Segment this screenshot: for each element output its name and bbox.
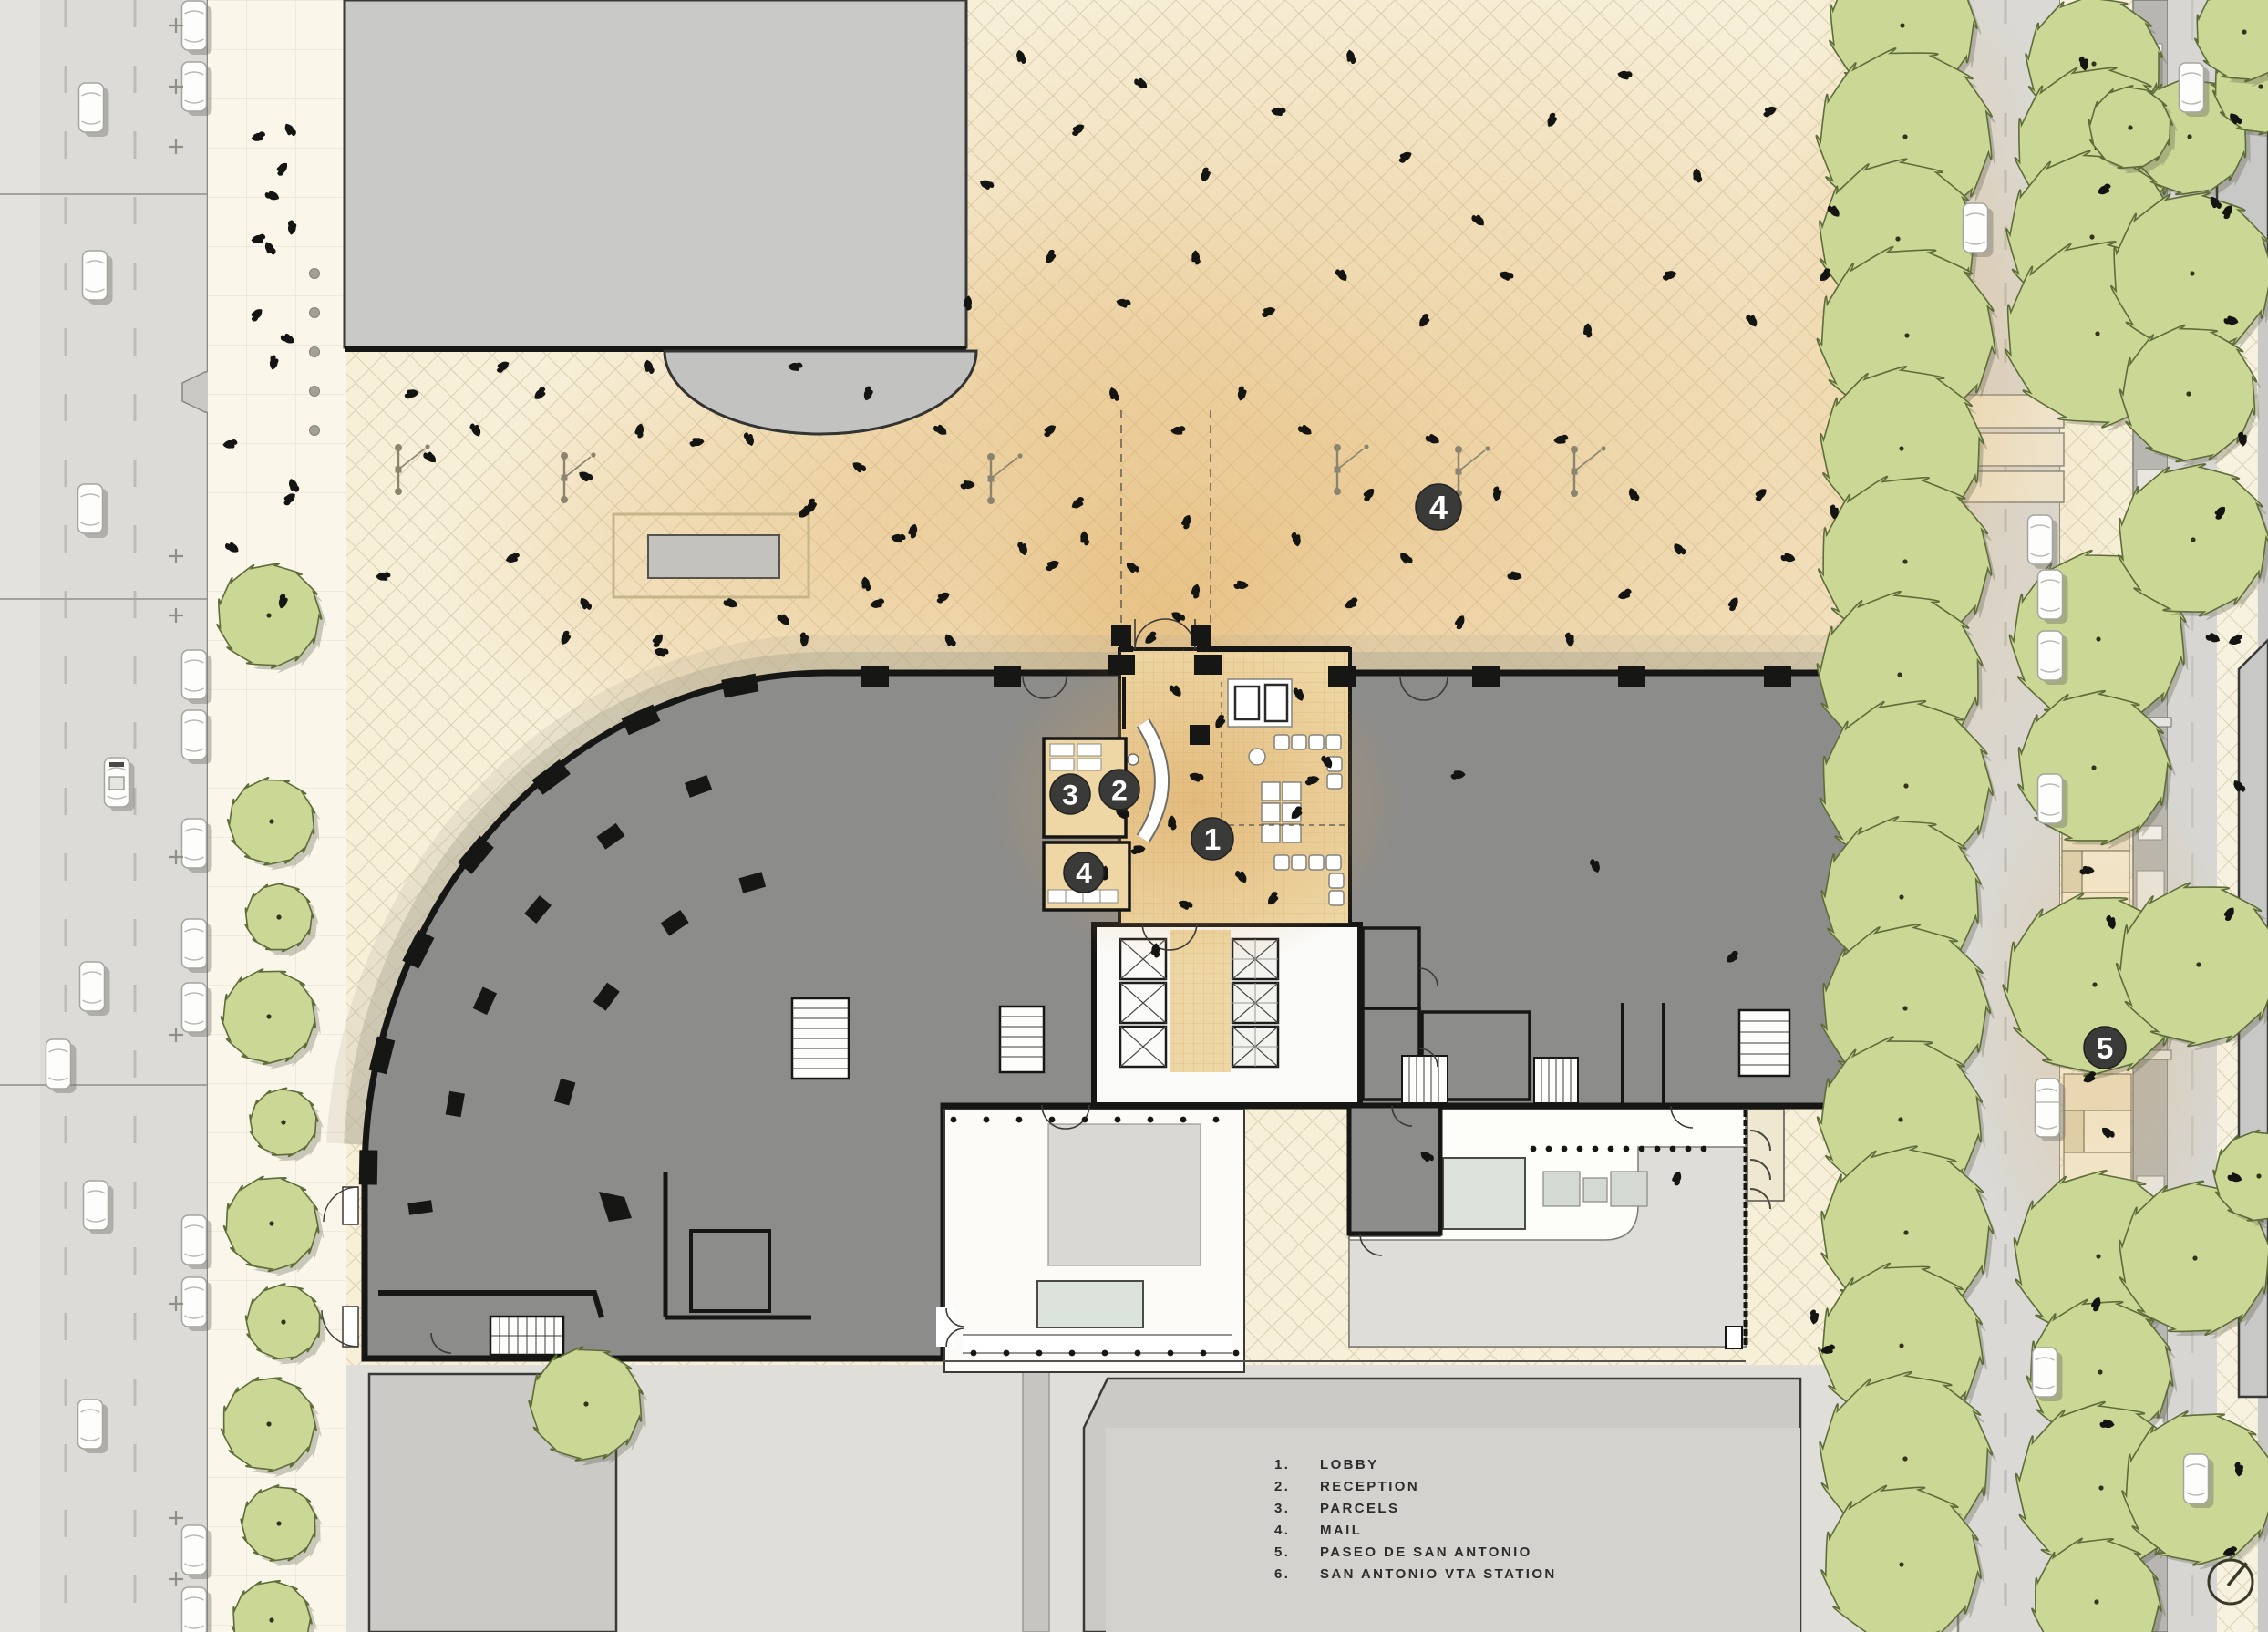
tree-trunk	[1902, 1006, 1907, 1010]
car	[2180, 63, 2210, 117]
car	[182, 1525, 212, 1579]
column	[1618, 666, 1645, 687]
tree-trunk	[1899, 1343, 1903, 1348]
tree-trunk	[1902, 559, 1907, 563]
stair-west-2	[1000, 1007, 1044, 1072]
car	[182, 62, 212, 116]
column	[1194, 655, 1222, 675]
legend-item: 1.LOBBY	[1274, 1457, 1379, 1472]
column-dot	[1546, 1146, 1552, 1152]
tree-trunk	[281, 1319, 285, 1324]
legend-label: LOBBY	[1320, 1457, 1379, 1472]
tree-trunk	[2095, 331, 2099, 336]
tree-trunk	[1902, 1456, 1907, 1461]
tree-trunk	[266, 1014, 271, 1018]
column-dot	[1670, 1146, 1676, 1152]
tree-trunk	[2256, 1173, 2261, 1178]
car	[80, 962, 110, 1016]
marker-4-plaza: 4	[1416, 484, 1461, 530]
legend-label: PARCELS	[1320, 1501, 1399, 1516]
marker-3-parcels: 3	[1050, 774, 1090, 814]
column-dot	[1168, 1350, 1174, 1357]
arch-bay	[1747, 1110, 1784, 1201]
tree-trunk	[1897, 672, 1902, 677]
tree-trunk	[1899, 894, 1903, 899]
legend-num: 4.	[1274, 1523, 1290, 1538]
column-dot	[1608, 1146, 1614, 1152]
tree-trunk	[1895, 236, 1900, 241]
column-dot	[1686, 1146, 1692, 1152]
column	[1472, 666, 1500, 687]
legend-label: MAIL	[1320, 1523, 1362, 1538]
courtyard-water-feature	[1037, 1281, 1143, 1327]
tree-trunk	[583, 1401, 588, 1406]
tree-trunk	[266, 613, 271, 617]
car	[79, 83, 109, 137]
tree-trunk	[2092, 982, 2097, 986]
tree-trunk	[276, 1521, 281, 1525]
column	[359, 1150, 378, 1184]
legend-num: 2.	[1274, 1479, 1290, 1494]
car	[83, 251, 113, 305]
marker-number: 4	[1076, 856, 1092, 889]
south-walkway	[1023, 1365, 1049, 1632]
car	[84, 1181, 114, 1234]
column-dot	[1180, 1117, 1187, 1123]
back-of-house-room	[1349, 1106, 1440, 1234]
column-dot	[1562, 1146, 1568, 1152]
tree-trunk	[2242, 29, 2246, 34]
tree-trunk	[2091, 765, 2096, 770]
tree-trunk	[281, 1120, 285, 1124]
car	[182, 1215, 212, 1269]
column-dot	[1213, 1117, 1220, 1123]
tree-trunk	[2187, 134, 2191, 139]
legend-num: 1.	[1274, 1457, 1290, 1472]
car	[78, 484, 108, 538]
car	[2038, 570, 2068, 624]
column	[1108, 655, 1135, 675]
column	[1190, 725, 1210, 745]
tree-trunk	[2192, 1255, 2197, 1260]
site-plan-page: 123445 1.LOBBY 2.RECEPTION 3.PARCELS 4.M…	[0, 0, 2268, 1632]
terrace-pool	[1443, 1158, 1525, 1229]
car	[182, 983, 212, 1037]
legend-num: 3.	[1274, 1501, 1290, 1516]
column-dot	[1135, 1350, 1141, 1357]
marker-4-mail: 4	[1064, 852, 1104, 893]
tree-trunk	[2098, 1485, 2103, 1490]
elevator	[1232, 1027, 1278, 1067]
car	[1964, 203, 1994, 257]
car	[182, 710, 212, 764]
car	[2184, 1454, 2214, 1508]
stair-core-south-2	[1534, 1058, 1578, 1103]
column-dot	[1233, 1350, 1240, 1357]
marker-number: 3	[1062, 778, 1078, 811]
elevator	[1120, 983, 1166, 1023]
car	[2028, 515, 2058, 569]
terrace-gate	[1726, 1327, 1742, 1348]
legend-label: RECEPTION	[1320, 1479, 1419, 1494]
tree-trunk	[1903, 1230, 1908, 1234]
column-dot	[1016, 1117, 1023, 1123]
bollard	[310, 308, 320, 318]
column-dot	[1639, 1146, 1645, 1152]
tree-trunk	[276, 914, 281, 919]
column-dot	[1069, 1350, 1076, 1357]
column-dot	[1201, 1350, 1207, 1357]
tree-trunk	[1902, 134, 1907, 139]
tree-trunk	[2096, 636, 2100, 641]
marker-2-reception: 2	[1099, 770, 1139, 810]
column-dot	[984, 1117, 990, 1123]
bollard	[310, 426, 320, 436]
car	[46, 1039, 77, 1093]
bollard	[310, 347, 320, 357]
column	[1328, 666, 1356, 687]
car	[2033, 1348, 2063, 1401]
column	[994, 666, 1021, 687]
tree-trunk	[2094, 1599, 2098, 1604]
tree-trunk	[1899, 446, 1903, 450]
legend-num: 6.	[1274, 1566, 1290, 1582]
tree-trunk	[1904, 333, 1909, 337]
plaza-planter	[648, 535, 779, 578]
column-dot	[951, 1117, 957, 1123]
police-car	[105, 758, 135, 811]
car	[182, 650, 212, 704]
column-dot	[1531, 1146, 1537, 1152]
column-dot	[1655, 1146, 1661, 1152]
marker-number: 2	[1111, 773, 1128, 806]
tree-trunk	[2190, 271, 2194, 275]
column-dot	[1593, 1146, 1599, 1152]
shuttle-van	[2036, 1079, 2066, 1141]
car	[78, 1400, 108, 1453]
courtyard-planter	[1048, 1124, 1201, 1265]
tree-trunk	[2186, 391, 2191, 396]
stair-core-south-1	[1402, 1056, 1448, 1103]
elevator	[1232, 983, 1278, 1023]
bollard	[310, 387, 320, 397]
marker-5-paseo-de-san-antonio: 5	[2084, 1027, 2126, 1069]
marker-number: 5	[2097, 1032, 2114, 1066]
column-dot	[1049, 1117, 1056, 1123]
column-dot	[1701, 1146, 1707, 1152]
stair-south	[490, 1317, 563, 1355]
tree-trunk	[2089, 234, 2094, 239]
tree-trunk	[2191, 537, 2195, 542]
tree-trunk	[2258, 84, 2263, 88]
marker-1-lobby: 1	[1191, 818, 1233, 860]
column-dot	[1082, 1117, 1088, 1123]
tree-trunk	[2098, 1369, 2102, 1374]
car	[2038, 631, 2068, 685]
legend-label: PASEO DE SAN ANTONIO	[1320, 1544, 1532, 1560]
tree-trunk	[266, 1421, 271, 1426]
street-west-shoulder	[0, 0, 40, 1632]
car	[182, 919, 212, 973]
tree-trunk	[2196, 962, 2201, 966]
marker-number: 1	[1204, 823, 1222, 857]
column-dot	[1115, 1117, 1121, 1123]
tree-trunk	[1899, 1562, 1903, 1566]
tree-trunk	[269, 819, 273, 823]
tree-trunk	[1898, 1117, 1902, 1121]
column-dot	[971, 1350, 977, 1357]
column-dot	[1102, 1350, 1108, 1357]
tree-trunk	[269, 1617, 273, 1622]
column-dot	[1036, 1350, 1043, 1357]
marker-number: 4	[1429, 489, 1448, 526]
stair-west-1	[792, 998, 849, 1079]
column	[1111, 625, 1131, 646]
site-plan-drawing: 123445 1.LOBBY 2.RECEPTION 3.PARCELS 4.M…	[0, 0, 2268, 1632]
tree-trunk	[2091, 61, 2096, 66]
car	[182, 1277, 212, 1331]
building-north	[345, 0, 966, 347]
desk-stool	[1128, 754, 1139, 765]
tree-trunk	[2096, 1254, 2100, 1258]
tree-trunk	[269, 1221, 273, 1225]
column-dot	[1624, 1146, 1630, 1152]
bollard	[310, 269, 320, 279]
column-dot	[1148, 1117, 1154, 1123]
car	[182, 819, 212, 873]
tree-trunk	[1900, 23, 1904, 27]
building-south-face	[1106, 1428, 1800, 1632]
elevator	[1120, 1027, 1166, 1067]
car	[182, 1587, 212, 1632]
column-dot	[1004, 1350, 1010, 1357]
column	[861, 666, 889, 687]
column-dot	[1577, 1146, 1583, 1152]
stair-east	[1739, 1010, 1789, 1076]
legend-num: 5.	[1274, 1544, 1290, 1560]
tree-trunk	[1903, 783, 1908, 788]
legend-label: SAN ANTONIO VTA STATION	[1320, 1566, 1557, 1582]
car	[182, 1, 212, 55]
tree-trunk	[2128, 125, 2132, 129]
column	[1764, 666, 1791, 687]
car	[2038, 774, 2068, 828]
column	[1191, 625, 1211, 646]
